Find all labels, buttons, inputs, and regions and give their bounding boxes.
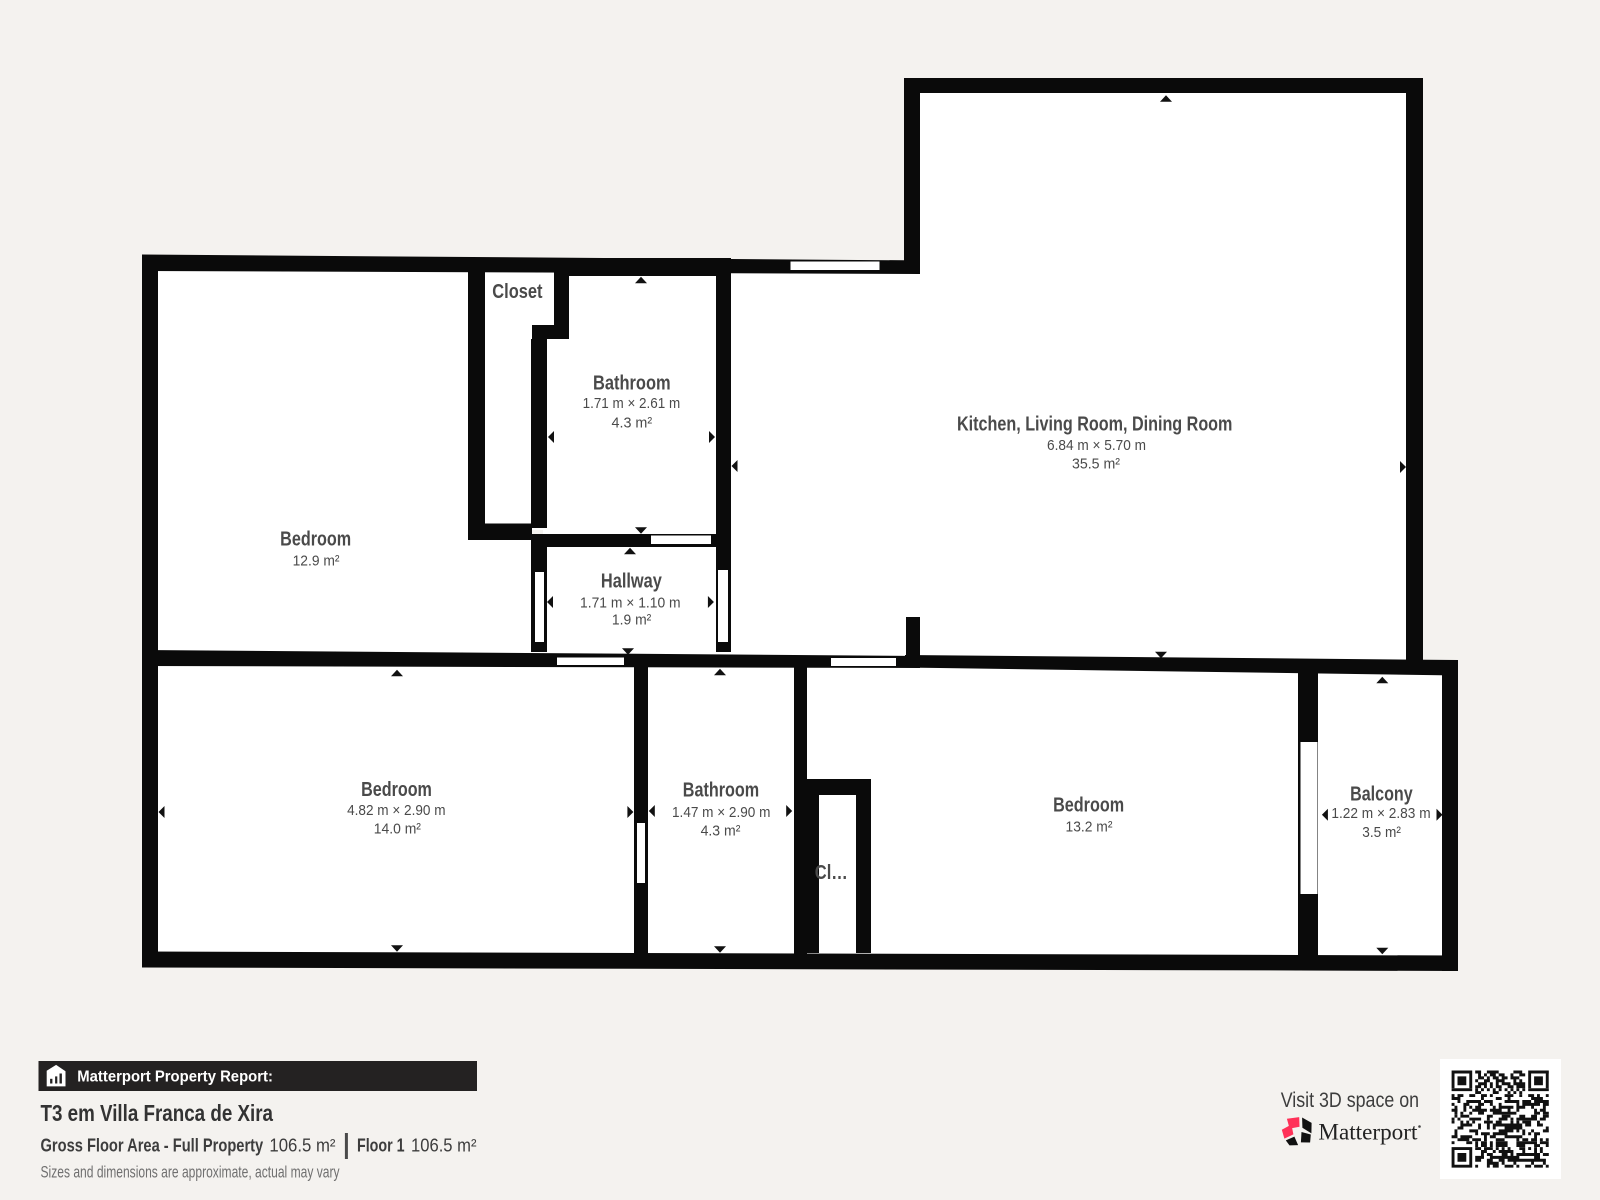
svg-text:1.9 m²: 1.9 m² (612, 611, 651, 628)
svg-text:Bathroom: Bathroom (683, 780, 759, 802)
svg-text:Bedroom: Bedroom (1053, 795, 1124, 817)
svg-text:35.5 m²: 35.5 m² (1072, 456, 1120, 473)
svg-text:Bedroom: Bedroom (361, 779, 432, 801)
svg-text:Gross Floor Area - Full Proper: Gross Floor Area - Full Property (41, 1136, 264, 1156)
svg-text:Bathroom: Bathroom (593, 373, 671, 395)
svg-text:106.5 m²: 106.5 m² (411, 1136, 477, 1156)
svg-text:Hallway: Hallway (601, 570, 663, 592)
svg-text:Matterport Property Report:: Matterport Property Report: (77, 1069, 273, 1086)
svg-text:T3 em Villa Franca de Xira: T3 em Villa Franca de Xira (41, 1100, 274, 1126)
svg-text:Closet: Closet (492, 281, 542, 303)
svg-text:Floor 1: Floor 1 (357, 1136, 405, 1156)
svg-text:1.71 m × 2.61 m: 1.71 m × 2.61 m (583, 395, 681, 412)
svg-text:3.5 m²: 3.5 m² (1362, 824, 1401, 841)
svg-text:4.3 m²: 4.3 m² (701, 822, 741, 839)
svg-text:13.2 m²: 13.2 m² (1066, 818, 1113, 835)
svg-text:1.71 m × 1.10 m: 1.71 m × 1.10 m (580, 595, 681, 612)
svg-text:1.47 m × 2.90 m: 1.47 m × 2.90 m (672, 804, 770, 821)
svg-text:Matterport: Matterport (1318, 1120, 1418, 1145)
svg-text:1.22 m × 2.83 m: 1.22 m × 2.83 m (1331, 805, 1430, 822)
svg-text:4.3 m²: 4.3 m² (612, 414, 653, 431)
svg-text:Kitchen, Living Room, Dining R: Kitchen, Living Room, Dining Room (957, 414, 1232, 436)
svg-text:Cl…: Cl… (815, 862, 848, 884)
svg-text:6.84 m × 5.70 m: 6.84 m × 5.70 m (1047, 437, 1146, 454)
svg-text:14.0 m²: 14.0 m² (374, 821, 421, 838)
svg-text:Visit 3D space on: Visit 3D space on (1281, 1089, 1419, 1112)
svg-text:Balcony: Balcony (1350, 784, 1413, 806)
svg-text:4.82 m × 2.90 m: 4.82 m × 2.90 m (347, 802, 445, 819)
svg-text:Bedroom: Bedroom (280, 528, 351, 550)
svg-text:106.5 m²: 106.5 m² (269, 1136, 335, 1156)
svg-text:12.9 m²: 12.9 m² (293, 553, 340, 570)
svg-text:Sizes and dimensions are appro: Sizes and dimensions are approximate, ac… (41, 1163, 340, 1182)
